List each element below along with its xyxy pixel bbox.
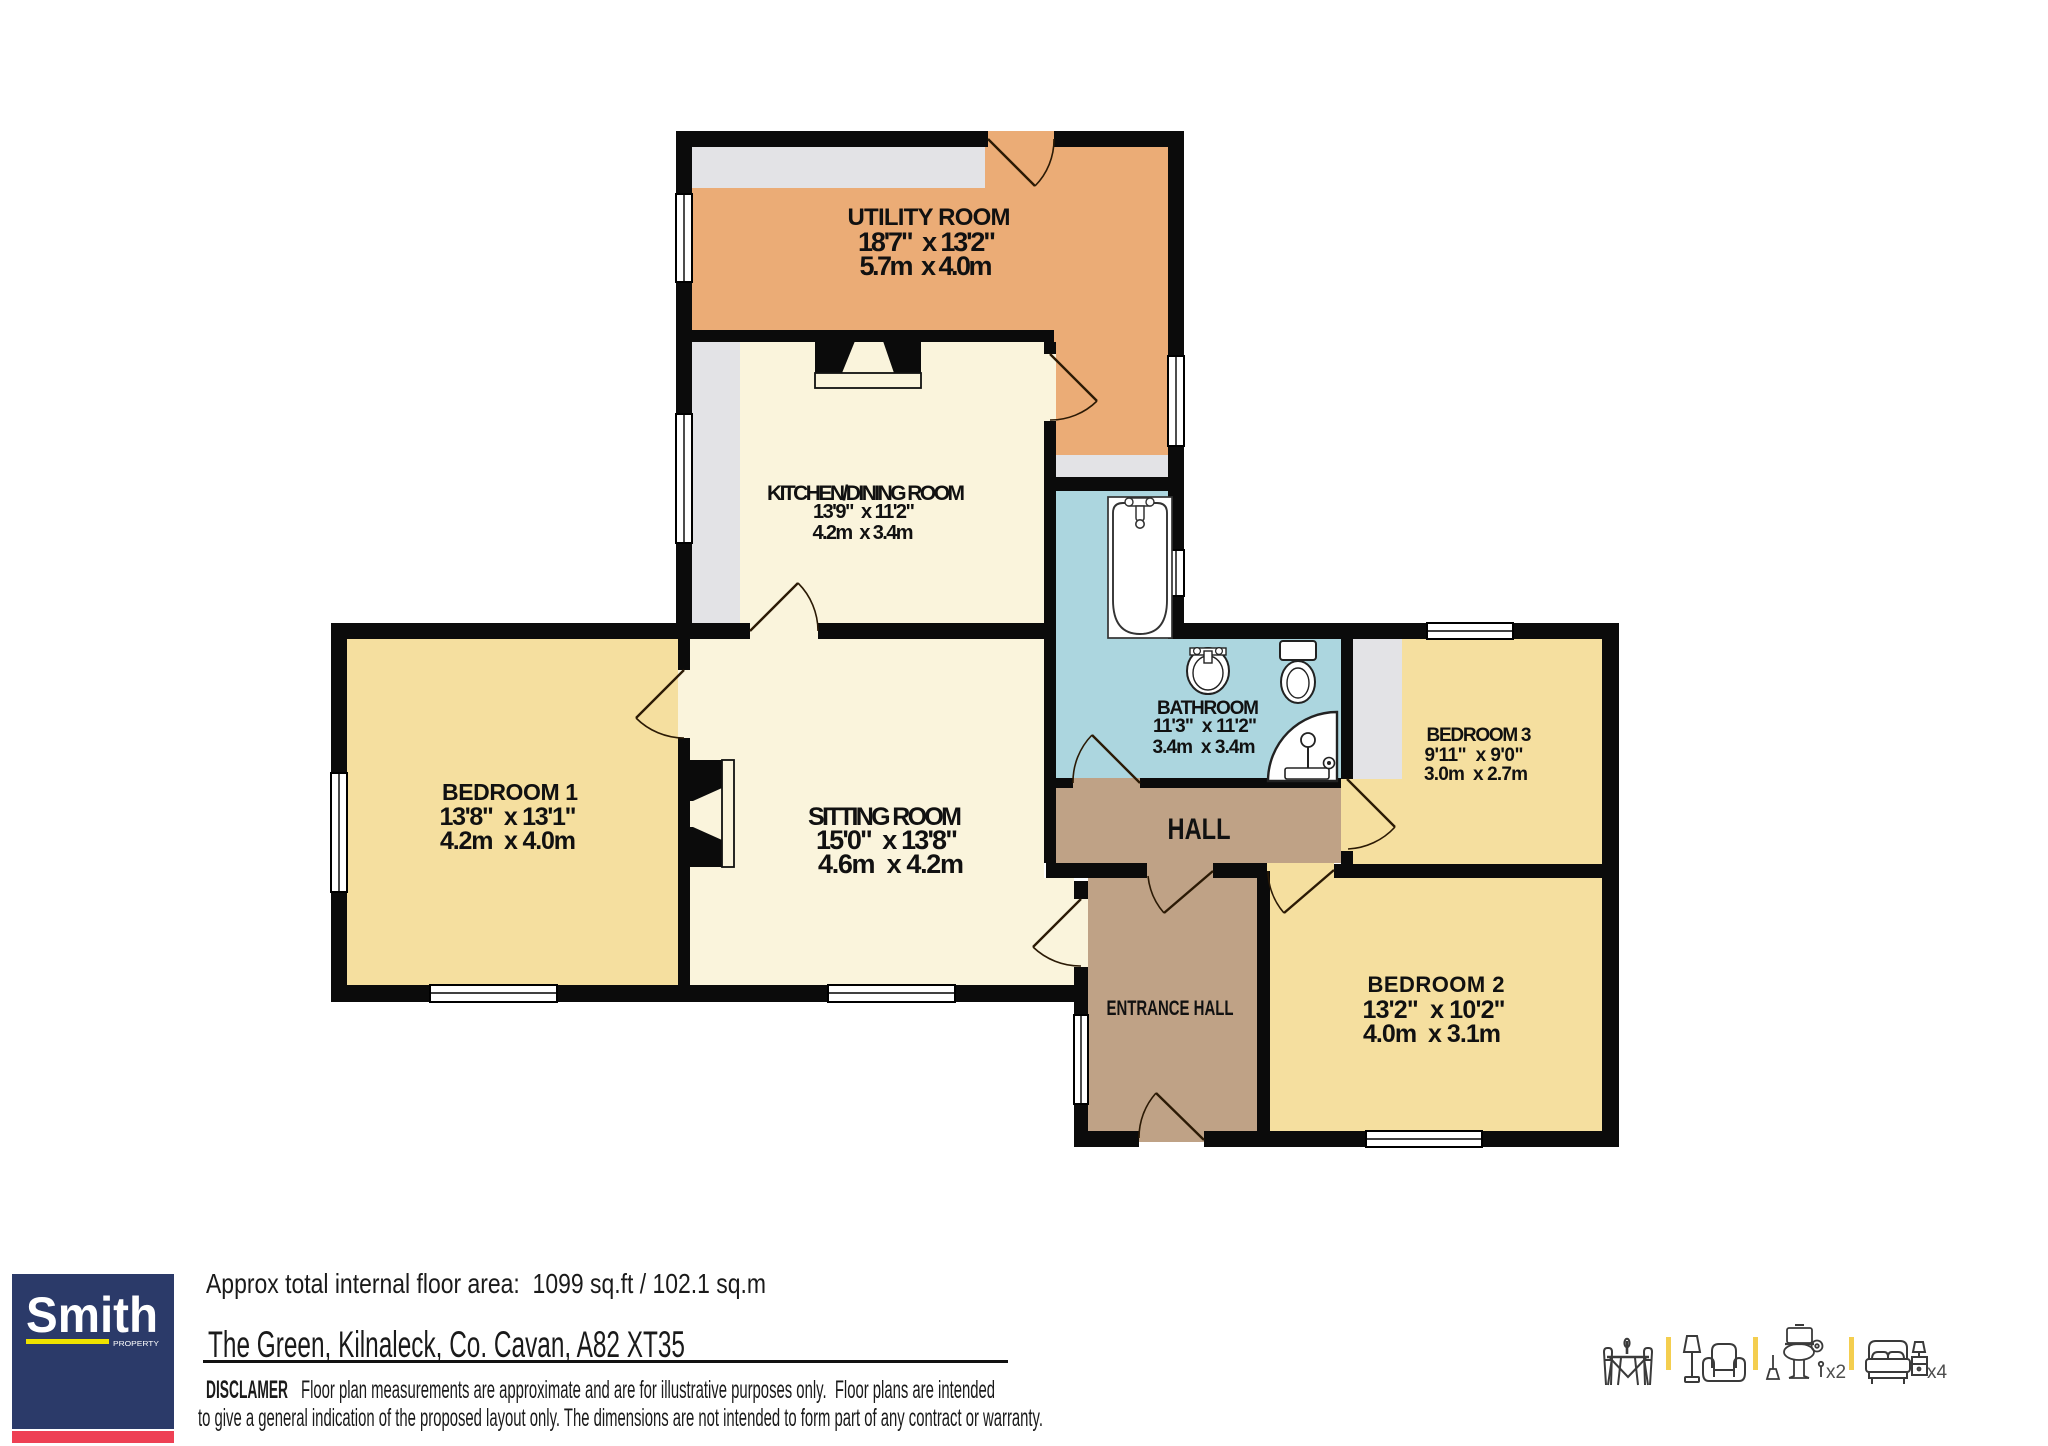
- svg-text:x2: x2: [1826, 1362, 1846, 1383]
- svg-text:13'9" x 11'2": 13'9" x 11'2": [813, 501, 915, 523]
- svg-text:x4: x4: [1927, 1362, 1948, 1383]
- svg-text:4.0m x 3.1m: 4.0m x 3.1m: [1363, 1020, 1501, 1048]
- svg-text:Smith: Smith: [26, 1287, 158, 1343]
- svg-text:3.4m x 3.4m: 3.4m x 3.4m: [1153, 737, 1256, 758]
- svg-text:Floor plan measurements are ap: Floor plan measurements are approximate …: [301, 1376, 995, 1404]
- svg-text:DISCLAMER: DISCLAMER: [206, 1376, 288, 1404]
- svg-text:3.0m x 2.7m: 3.0m x 2.7m: [1424, 764, 1528, 785]
- svg-text:4.2m x 3.4m: 4.2m x 3.4m: [813, 522, 914, 544]
- svg-text:BEDROOM 1: BEDROOM 1: [442, 779, 578, 805]
- svg-text:The Green, Kilnaleck, Co. Cava: The Green, Kilnaleck, Co. Cavan, A82 XT3…: [208, 1324, 685, 1365]
- svg-text:11'3" x 11'2": 11'3" x 11'2": [1153, 716, 1257, 737]
- svg-text:PROPERTY: PROPERTY: [113, 1339, 159, 1348]
- svg-text:Approx total internal floor ar: Approx total internal floor area: 1099 s…: [206, 1268, 766, 1299]
- svg-text:4.6m x 4.2m: 4.6m x 4.2m: [818, 849, 964, 879]
- svg-text:5.7m x 4.0m: 5.7m x 4.0m: [860, 251, 993, 281]
- svg-text:4.2m x 4.0m: 4.2m x 4.0m: [440, 827, 576, 855]
- svg-text:BEDROOM 2: BEDROOM 2: [1368, 972, 1505, 997]
- svg-text:ENTRANCE HALL: ENTRANCE HALL: [1107, 997, 1234, 1020]
- svg-text:HALL: HALL: [1168, 813, 1231, 846]
- svg-text:9'11" x 9'0": 9'11" x 9'0": [1425, 745, 1524, 766]
- svg-text:to give a general indication o: to give a general indication of the prop…: [198, 1404, 1043, 1432]
- svg-text:BEDROOM 3: BEDROOM 3: [1427, 725, 1532, 746]
